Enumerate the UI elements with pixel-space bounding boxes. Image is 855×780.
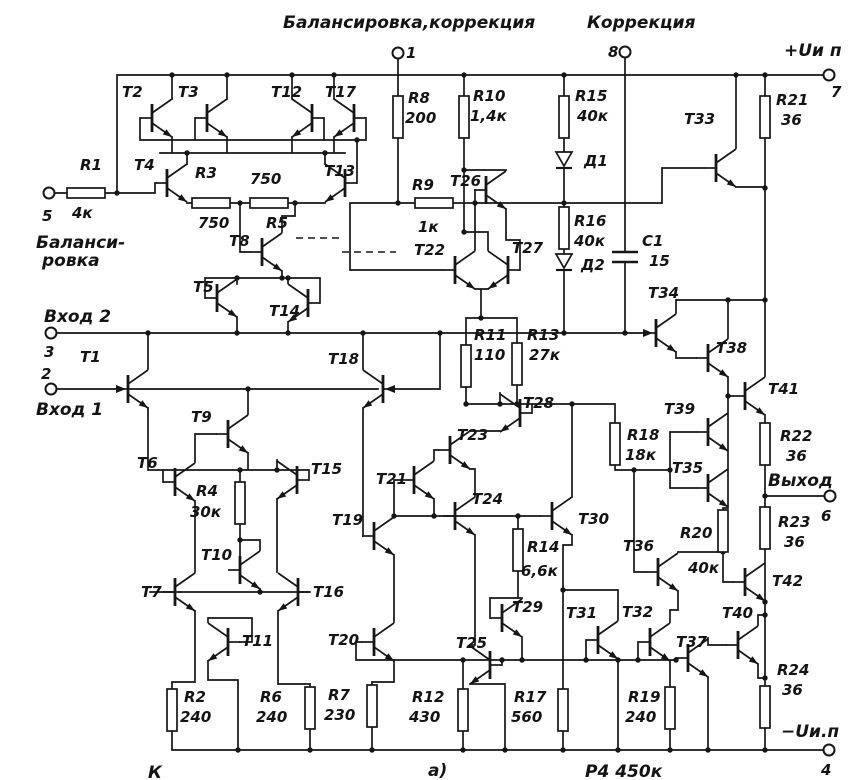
junction-dot [569,401,574,406]
resistor-name-R2: R2 [184,688,206,706]
junction-dot [235,747,240,752]
resistor-body [558,689,568,731]
transistor-label-T31: T31 [566,604,597,622]
junction-dot [354,137,359,142]
resistor-body [67,188,105,198]
caption-left: К [148,763,163,780]
transistor-label-T37: T37 [676,633,708,651]
resistor-name-R12: R12 [412,688,444,706]
junction-dot [667,747,672,752]
resistor-value-R14: 6,6к [521,562,559,580]
resistor-R15 [559,96,569,138]
schematic-canvas: R14кR2240R3750R430кR5750R6240R7230R8200R… [0,0,855,780]
transistor-label-T32: T32 [622,603,653,621]
resistor-name-R21: R21 [776,91,808,109]
transistor-label-T20: T20 [328,631,359,649]
pin-number-2: 2 [41,365,51,383]
resistor-value-R1: 4к [71,204,93,222]
resistor-R9 [415,198,453,208]
junction-dot [762,297,767,302]
terminal-pin-2 [46,384,57,395]
transistor-label-T17: T17 [325,83,357,101]
resistor-value-R23: 36 [784,533,805,551]
capacitor-value-C1: 15 [649,252,670,270]
resistor-body [458,689,468,731]
resistor-R21 [760,96,770,138]
junction-dot [561,330,566,335]
resistor-R13 [512,343,522,385]
junction-dot [725,393,730,398]
junction-dot [237,467,242,472]
resistor-R24 [760,686,770,728]
resistor-R17 [558,689,568,731]
junction-dot [561,200,566,205]
resistor-R12 [458,689,468,731]
transistor-label-T38: T38 [716,339,747,357]
terminal-name-7: +Uи п [784,41,842,61]
junction-dot [515,513,520,518]
junction-dot [631,467,636,472]
resistor-R7 [367,685,377,727]
resistor-value-R5: 750 [250,170,281,188]
resistor-R11 [461,345,471,387]
resistor-name-R14: R14 [527,538,559,556]
resistor-R22 [760,423,770,465]
junction-dot [285,275,290,280]
junction-dot [431,513,436,518]
resistor-value-R15: 40к [576,107,609,125]
resistor-value-R20: 40к [687,559,720,577]
resistor-R19 [665,687,675,729]
resistor-value-R18: 18к [625,446,657,464]
transistor-label-T25: T25 [456,634,487,652]
junction-dot [292,200,297,205]
junction-dot [234,330,239,335]
diode-label-Д1: Д1 [583,152,608,170]
junction-dot [733,72,738,77]
junction-dot [460,657,465,662]
terminal-pin-5 [44,188,55,199]
caption-right: Р4 450к [585,762,663,780]
pin-number-6: 6 [821,507,831,525]
resistor-body [718,510,728,552]
resistor-body [167,689,177,731]
junction-dot [461,229,466,234]
resistor-body [760,507,770,549]
transistor-label-T23: T23 [457,426,488,444]
diode-label-Д2: Д2 [580,256,605,274]
resistor-value-R3: 750 [198,214,229,232]
terminal-name-3: Вход 2 [44,307,111,327]
junction-dot [257,589,262,594]
junction-dot [583,657,588,662]
junction-dot [285,330,290,335]
junction-dot [615,747,620,752]
resistor-name-R9: R9 [412,176,434,194]
resistor-name-R22: R22 [780,427,812,445]
terminal-name-6: Выход [768,471,833,491]
terminal-name-4: −Uи.п [781,722,839,742]
resistor-name-R11: R11 [474,326,506,344]
resistor-R23 [760,507,770,549]
transistor-label-T26: T26 [450,172,481,190]
junction-dot [224,72,229,77]
junction-dot [279,275,284,280]
terminal-circle [46,328,57,339]
pin-number-4: 4 [820,761,831,779]
resistor-name-R19: R19 [628,688,660,706]
pin-number-5: 5 [42,207,52,225]
pin-number-1: 1 [406,44,416,62]
terminal-pin-1 [393,48,404,59]
junction-dot [145,330,150,335]
resistor-R5 [250,198,288,208]
resistor-R6 [305,687,315,729]
junction-dot [184,150,189,155]
terminal-name-2: Вход 1 [36,400,103,420]
transistor-label-T27: T27 [512,239,544,257]
terminal-circle [825,491,836,502]
resistor-body [665,687,675,729]
terminal-pin-6 [825,491,836,502]
resistor-value-R22: 36 [786,447,807,465]
resistor-value-R16: 40к [573,232,606,250]
transistor-label-T29: T29 [512,598,543,616]
terminal-name-1: Балансировка,коррекция [283,13,535,33]
junction-dot [460,747,465,752]
transistor-label-T33: T33 [684,110,715,128]
transistor-label-T15: T15 [311,460,342,478]
transistor-label-T12: T12 [271,83,302,101]
junction-dot [169,72,174,77]
junction-dot [635,657,640,662]
resistor-body [760,686,770,728]
resistor-name-R1: R1 [80,156,102,174]
junction-dot [274,467,279,472]
terminal-circle [393,48,404,59]
junction-dot [762,675,767,680]
transistor-label-T8: T8 [229,232,250,250]
resistor-body [250,198,288,208]
resistor-name-R6: R6 [260,688,282,706]
transistor-label-T21: T21 [376,470,407,488]
resistor-name-R24: R24 [777,661,809,679]
junction-dot [762,493,767,498]
transistor-label-T18: T18 [328,350,359,368]
junction-dot [502,747,507,752]
resistor-body [512,343,522,385]
junction-dot [705,747,710,752]
resistor-value-R17: 560 [511,708,542,726]
transistor-label-T10: T10 [201,546,232,564]
junction-dot [762,612,767,617]
resistor-value-R10: 1,4к [470,107,508,125]
terminal-name2-5: ровка [41,251,100,271]
junction-dot [360,330,365,335]
resistor-R2 [167,689,177,731]
junction-dot [762,72,767,77]
junction-dot [519,657,524,662]
resistor-name-R5: R5 [266,214,288,232]
junction-dot [461,72,466,77]
transistor-label-T39: T39 [664,400,695,418]
transistor-label-T9: T9 [191,408,212,426]
resistor-name-R13: R13 [527,326,559,344]
resistor-R10 [459,96,469,138]
transistor-label-T41: T41 [768,380,799,398]
resistor-value-R2: 240 [180,708,211,726]
junction-dot [369,747,374,752]
capacitor-name-C1: C1 [642,232,663,250]
resistor-body [760,96,770,138]
transistor-label-T14: T14 [269,302,300,320]
transistor-label-T36: T36 [623,537,654,555]
junction-dot [245,386,250,391]
transistor-label-T34: T34 [648,284,679,302]
opamp-schematic: R14кR2240R3750R430кR5750R6240R7230R8200R… [0,0,855,780]
resistor-name-R18: R18 [627,426,659,444]
resistor-value-R12: 430 [408,708,440,726]
resistor-value-R21: 36 [781,111,802,129]
pin-number-7: 7 [831,83,842,101]
resistor-value-R11: 110 [474,346,505,364]
pin-number-8: 8 [608,43,618,61]
junction-dot [762,747,767,752]
junction-dot [622,330,627,335]
junction-dot [472,200,477,205]
resistor-R16 [559,207,569,249]
junction-dot [237,537,242,542]
resistor-name-R8: R8 [408,89,430,107]
resistor-name-R7: R7 [328,686,351,704]
junction-dot [322,150,327,155]
resistor-name-R3: R3 [195,164,217,182]
junction-dot [114,190,119,195]
terminal-circle [620,47,631,58]
transistor-label-T35: T35 [672,459,703,477]
junction-dot [237,200,242,205]
junction-dot [560,747,565,752]
transistor-label-T30: T30 [578,510,609,528]
resistor-body [461,345,471,387]
resistor-R8 [393,96,403,138]
resistor-body [415,198,453,208]
resistor-value-R8: 200 [405,109,436,127]
resistor-name-R10: R10 [473,87,505,105]
resistor-body [192,198,230,208]
transistor-label-T5: T5 [193,278,214,296]
terminal-name-8: Коррекция [587,13,695,33]
junction-dot [561,72,566,77]
resistor-value-R19: 240 [625,708,656,726]
resistor-value-R7: 230 [324,706,355,724]
resistor-name-R4: R4 [196,482,218,500]
resistor-body [235,482,245,524]
terminal-pin-7 [824,70,835,81]
junction-dot [289,72,294,77]
junction-dot [395,200,400,205]
resistor-name-R17: R17 [514,688,547,706]
junction-dot [478,315,483,320]
resistor-body [559,207,569,249]
transistor-label-T11: T11 [242,632,273,650]
terminal-pin-8 [620,47,631,58]
transistor-label-T6: T6 [137,454,158,472]
pin-number-3: 3 [44,343,54,361]
terminal-name-5: Баланси- [36,233,125,253]
junction-dot [497,401,502,406]
resistor-body [305,687,315,729]
resistor-body [367,685,377,727]
transistor-label-T3: T3 [178,83,199,101]
transistor-label-T4: T4 [134,156,155,174]
transistor-label-T19: T19 [332,511,363,529]
caption-center: а) [428,761,447,780]
junction-dot [762,185,767,190]
resistor-R20 [718,510,728,552]
terminal-pin-4 [824,745,835,756]
junction-dot [499,657,504,662]
junction-dot [437,330,442,335]
junction-dot [560,587,565,592]
resistor-R3 [192,198,230,208]
resistor-body [393,96,403,138]
junction-dot [725,297,730,302]
junction-dot [331,72,336,77]
resistor-name-R15: R15 [575,87,607,105]
terminal-circle [46,384,57,395]
resistor-R4 [235,482,245,524]
resistor-value-R9: 1к [418,218,439,236]
transistor-label-T7: T7 [141,583,162,601]
terminal-circle [824,70,835,81]
resistor-value-R24: 36 [782,681,803,699]
transistor-label-T28: T28 [523,394,554,412]
terminal-circle [44,188,55,199]
resistor-name-R16: R16 [574,212,606,230]
transistor-label-T40: T40 [722,604,753,622]
terminal-circle [824,745,835,756]
transistor-label-T16: T16 [313,583,344,601]
resistor-R18 [610,423,620,465]
resistor-value-R6: 240 [256,708,287,726]
transistor-label-T1: T1 [80,348,101,366]
transistor-label-T13: T13 [324,162,355,180]
resistor-name-R23: R23 [778,513,810,531]
resistor-name-R20: R20 [680,524,712,542]
terminal-pin-3 [46,328,57,339]
junction-dot [463,401,468,406]
resistor-value-R13: 27к [529,346,561,364]
transistor-label-T24: T24 [472,490,503,508]
resistor-body [459,96,469,138]
resistor-R1 [67,188,105,198]
transistor-label-T42: T42 [772,572,803,590]
transistor-label-T22: T22 [414,241,445,259]
resistor-body [559,96,569,138]
resistor-value-R4: 30к [190,503,222,521]
resistor-body [610,423,620,465]
transistor-label-T2: T2 [122,83,143,101]
resistor-body [760,423,770,465]
junction-dot [307,747,312,752]
